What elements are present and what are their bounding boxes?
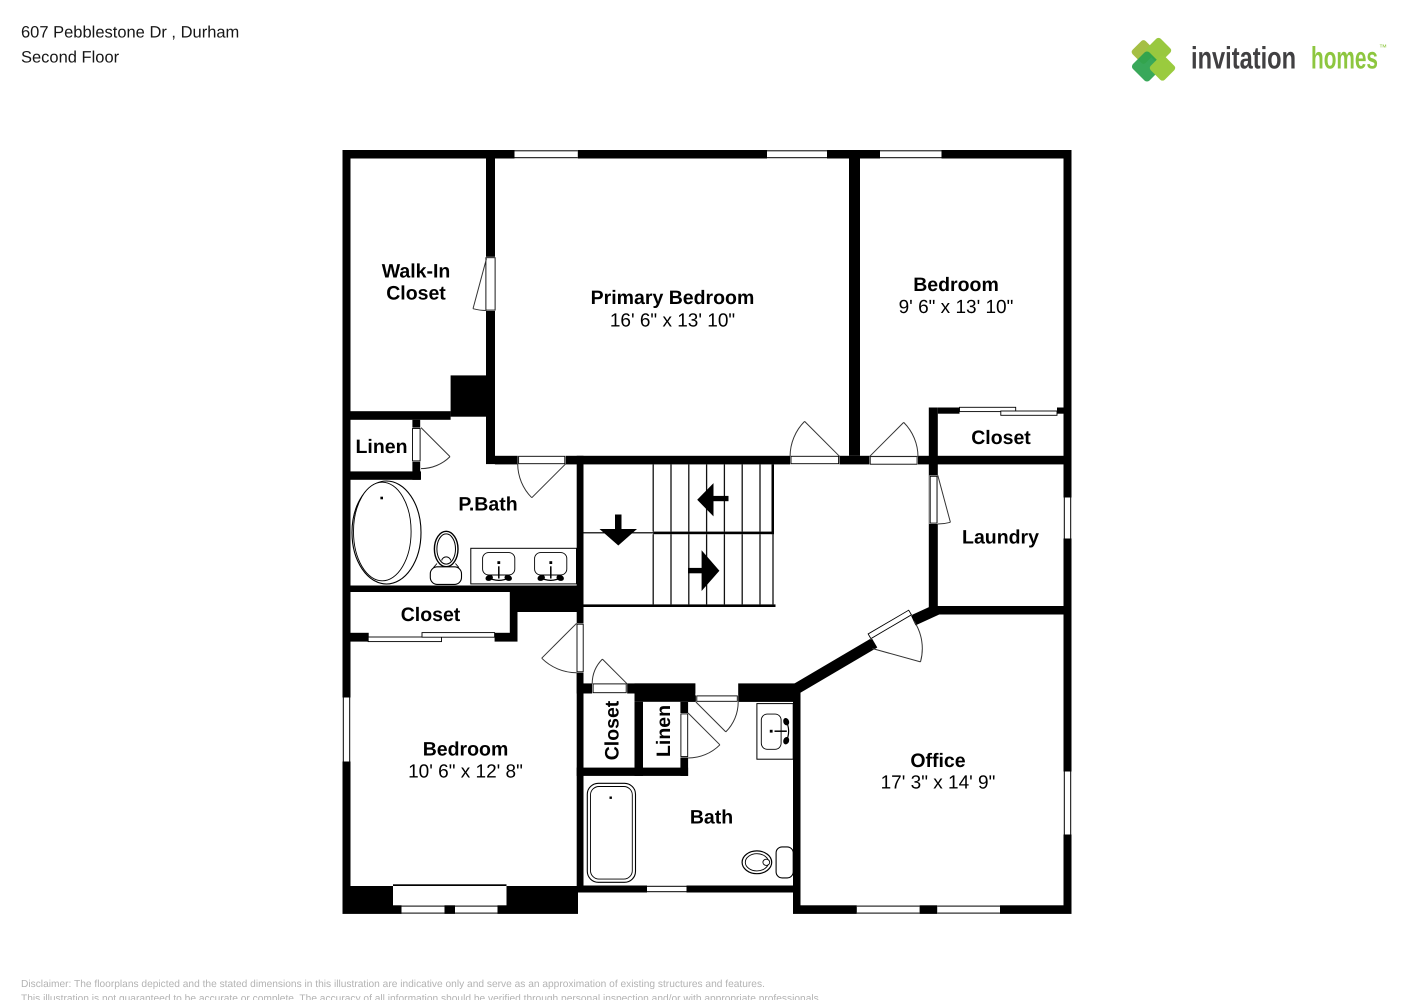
svg-text:9' 6" x 13' 10": 9' 6" x 13' 10" bbox=[899, 297, 1014, 318]
svg-text:17' 3" x 14' 9": 17' 3" x 14' 9" bbox=[881, 773, 996, 794]
svg-text:Closet: Closet bbox=[602, 700, 624, 760]
svg-text:This illustration is not guara: This illustration is not guaranteed to b… bbox=[21, 994, 822, 1000]
svg-text:Linen: Linen bbox=[653, 705, 675, 757]
svg-text:Second Floor: Second Floor bbox=[21, 49, 120, 67]
svg-text:™: ™ bbox=[1379, 43, 1387, 52]
svg-text:Bath: Bath bbox=[690, 807, 733, 829]
svg-text:Bedroom: Bedroom bbox=[423, 739, 509, 761]
svg-text:Office: Office bbox=[910, 750, 965, 772]
svg-text:Linen: Linen bbox=[356, 436, 408, 458]
svg-text:Disclaimer: The floorplans dep: Disclaimer: The floorplans depicted and … bbox=[21, 979, 765, 990]
svg-text:607 Pebblestone Dr , Durham: 607 Pebblestone Dr , Durham bbox=[21, 24, 239, 42]
svg-text:Closet: Closet bbox=[401, 604, 461, 626]
svg-text:Laundry: Laundry bbox=[962, 527, 1039, 549]
svg-text:Closet: Closet bbox=[971, 427, 1031, 449]
svg-text:Walk-In: Walk-In bbox=[382, 261, 451, 283]
svg-text:invitation: invitation bbox=[1191, 41, 1296, 76]
svg-text:homes: homes bbox=[1311, 41, 1378, 76]
svg-text:Primary Bedroom: Primary Bedroom bbox=[591, 287, 755, 309]
svg-text:10' 6" x 12' 8": 10' 6" x 12' 8" bbox=[408, 762, 523, 783]
svg-text:Closet: Closet bbox=[386, 283, 446, 305]
svg-text:P.Bath: P.Bath bbox=[458, 494, 517, 516]
svg-text:Bedroom: Bedroom bbox=[913, 274, 999, 296]
svg-text:16' 6" x 13' 10": 16' 6" x 13' 10" bbox=[610, 311, 735, 332]
